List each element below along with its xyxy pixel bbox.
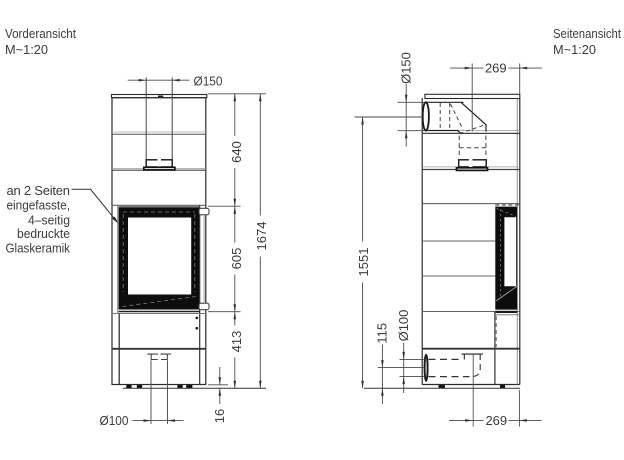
svg-text:M~1:20: M~1:20 [553,42,596,57]
svg-text:eingefasste,: eingefasste, [7,198,71,213]
svg-text:M~1:20: M~1:20 [5,42,48,57]
svg-text:269: 269 [485,413,507,428]
svg-text:Vorderansicht: Vorderansicht [5,26,76,41]
svg-text:Ø150: Ø150 [398,52,413,84]
svg-text:16: 16 [212,409,227,423]
svg-text:115: 115 [375,323,390,344]
svg-text:1551: 1551 [356,248,371,277]
svg-text:269: 269 [485,61,507,76]
svg-text:Ø150: Ø150 [194,74,223,89]
svg-text:Ø100: Ø100 [396,310,411,342]
svg-text:an 2 Seiten: an 2 Seiten [7,183,71,198]
svg-text:Glaskeramik: Glaskeramik [6,241,71,256]
svg-text:413: 413 [229,331,244,353]
svg-text:1674: 1674 [254,222,269,251]
svg-text:Ø100: Ø100 [100,413,129,428]
svg-text:640: 640 [229,141,244,163]
svg-text:Seitenansicht: Seitenansicht [553,26,621,41]
svg-text:605: 605 [229,248,244,270]
svg-text:bedruckte: bedruckte [17,226,70,241]
